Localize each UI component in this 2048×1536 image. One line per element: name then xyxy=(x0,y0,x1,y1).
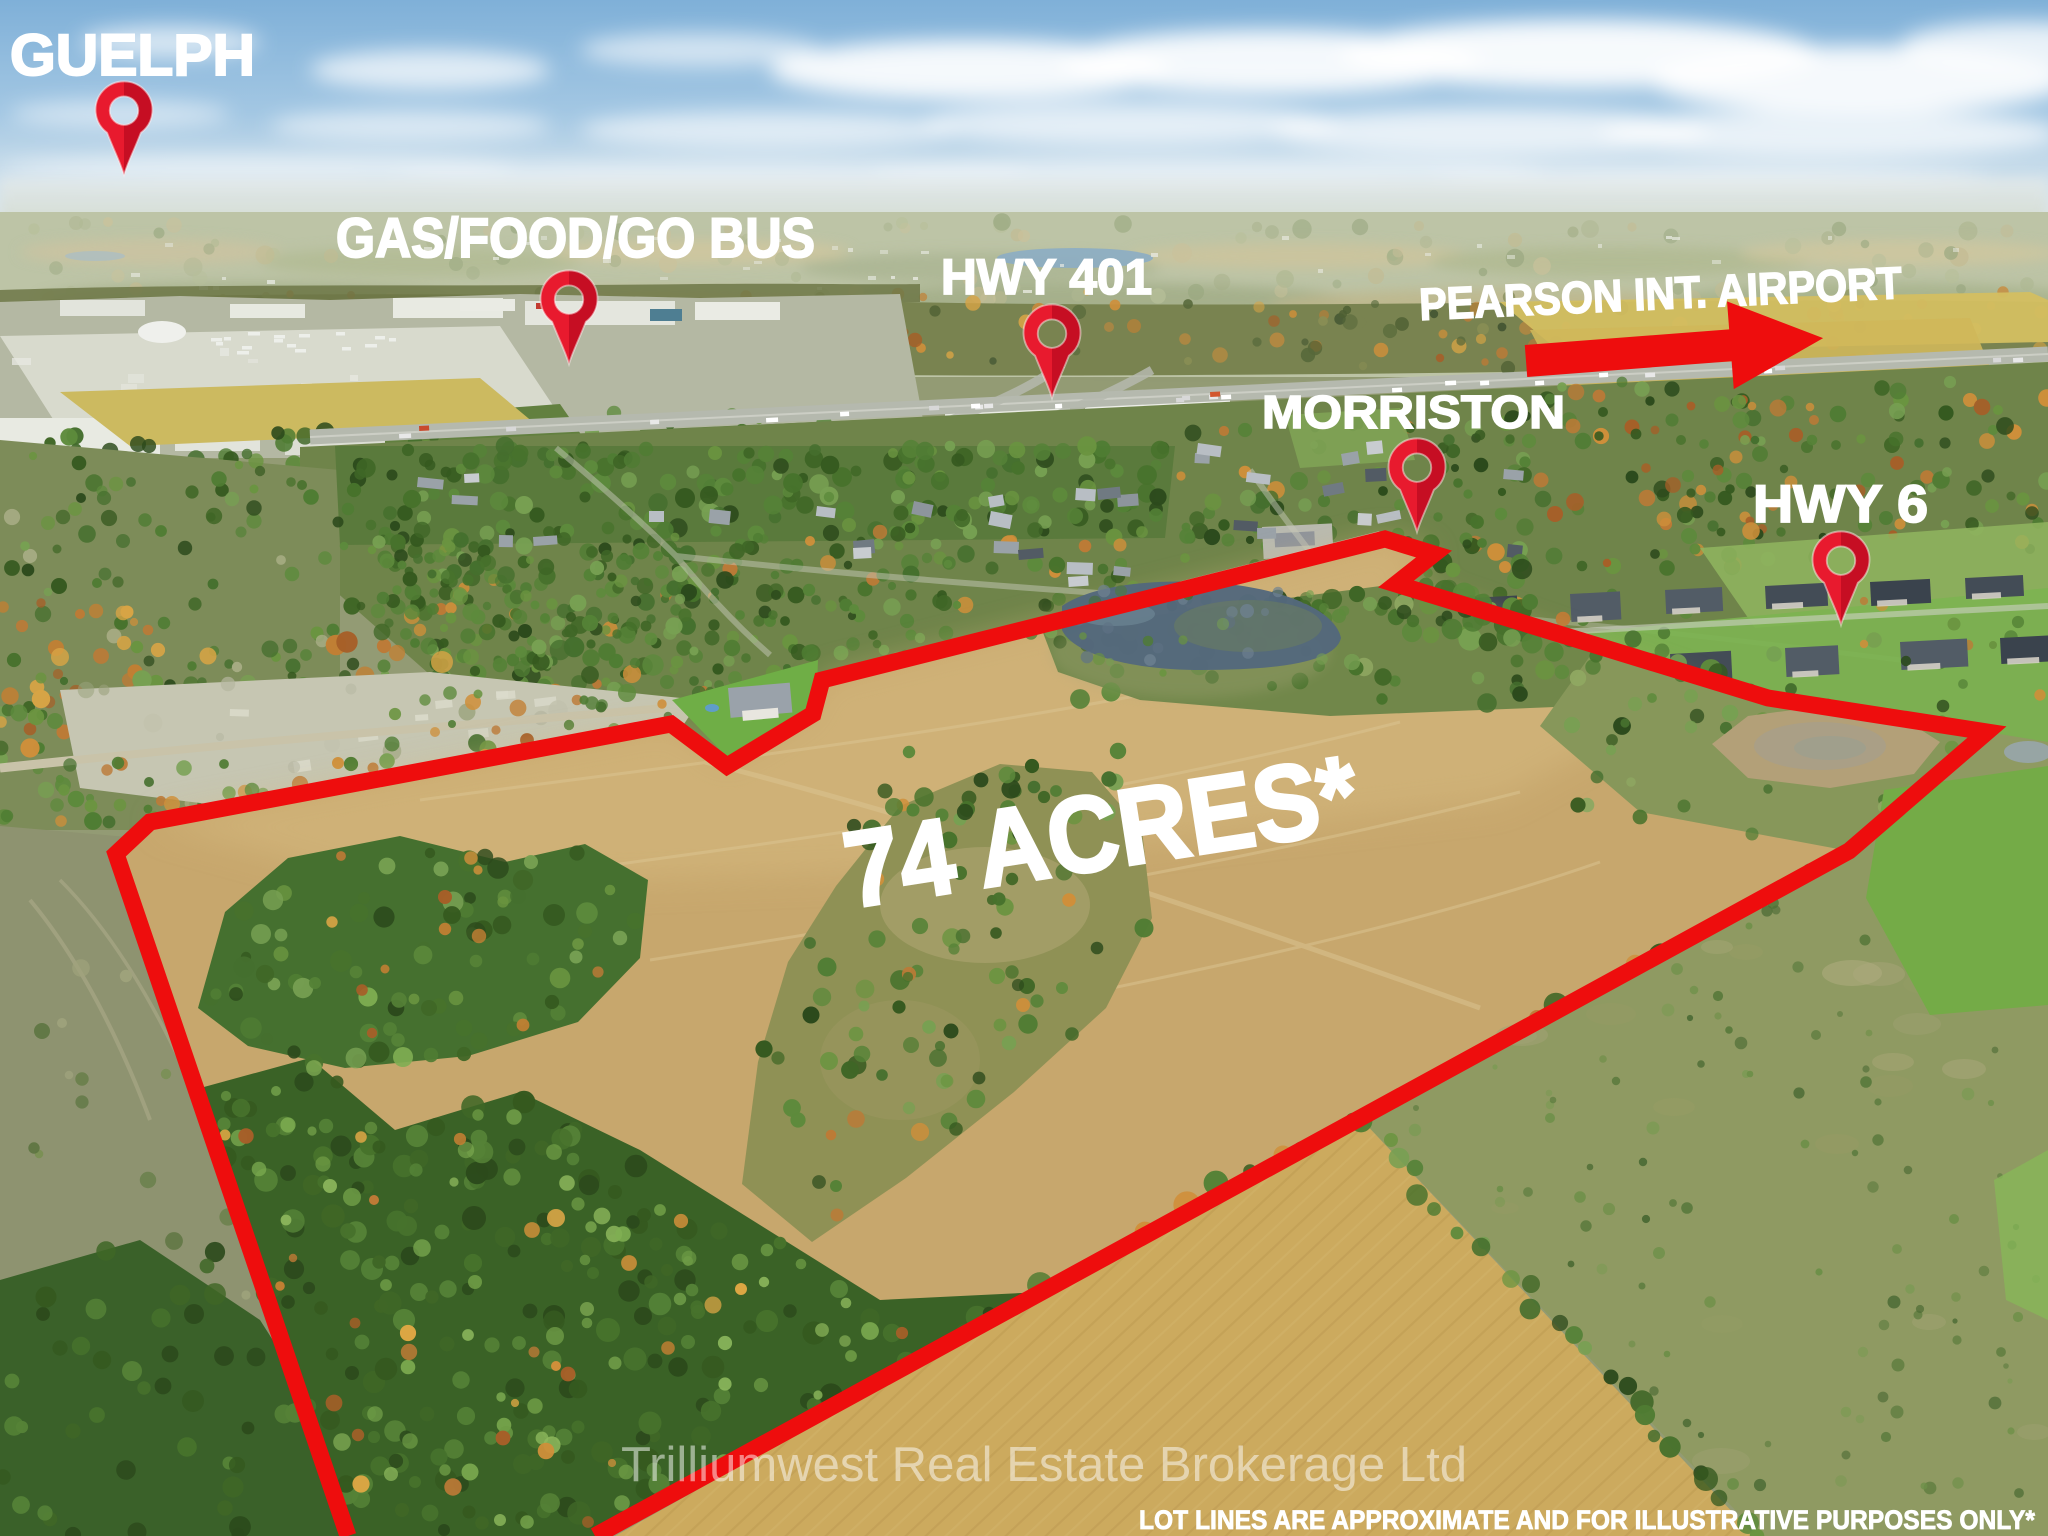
svg-text:HWY 401: HWY 401 xyxy=(941,249,1152,305)
svg-text:MORRISTON: MORRISTON xyxy=(1262,386,1565,438)
svg-text:Trilliumwest Real Estate Broke: Trilliumwest Real Estate Brokerage Ltd xyxy=(621,1438,1467,1492)
svg-text:GAS/FOOD/GO BUS: GAS/FOOD/GO BUS xyxy=(336,206,815,269)
svg-text:GUELPH: GUELPH xyxy=(10,23,255,88)
svg-text:LOT LINES ARE APPROXIMATE AND: LOT LINES ARE APPROXIMATE AND FOR ILLUST… xyxy=(1139,1505,2036,1535)
svg-text:HWY 6: HWY 6 xyxy=(1753,475,1928,534)
